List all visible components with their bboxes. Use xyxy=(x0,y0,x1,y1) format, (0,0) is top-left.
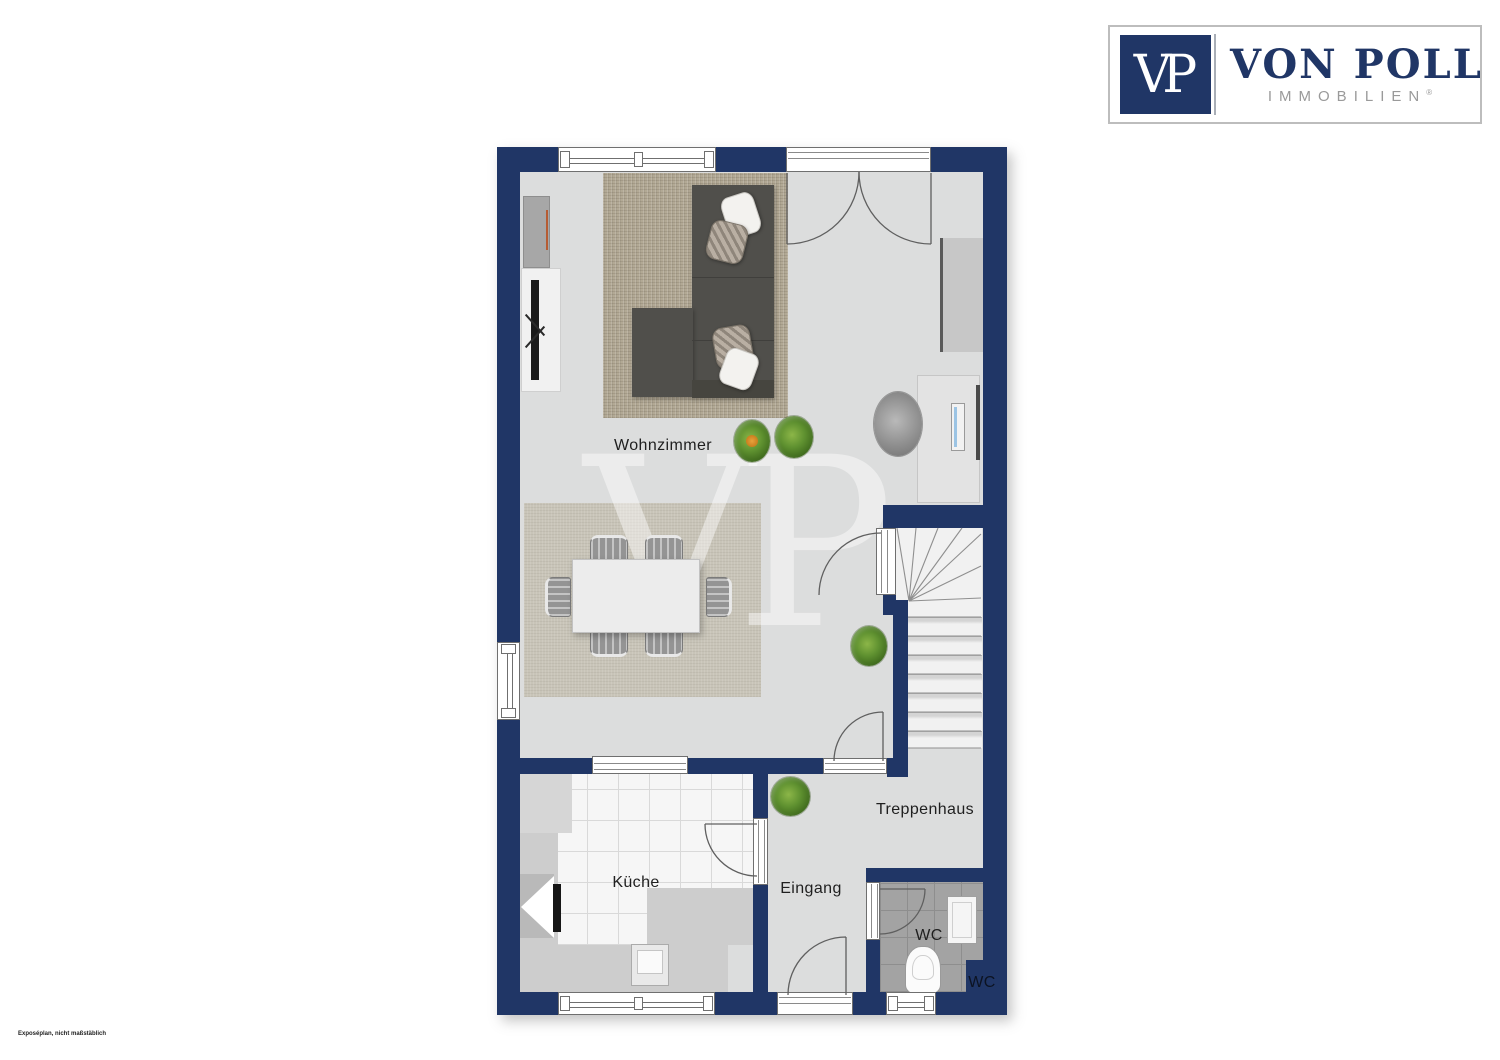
logo-divider xyxy=(1214,34,1216,115)
stair-treads xyxy=(897,528,981,748)
von-poll-logo: VP VON POLL IMMOBILIEN® xyxy=(1108,25,1482,124)
room-label-wc: WC xyxy=(915,927,942,945)
room-label-living: Wohnzimmer xyxy=(614,437,712,455)
logo-brand-subtitle: IMMOBILIEN® xyxy=(1230,88,1470,105)
floorplan-page: { "logo": { "vp_initials": "VP", "brand"… xyxy=(0,0,1500,1060)
room-label-staircase: Treppenhaus xyxy=(876,801,974,819)
room-label-wc-outer: WC xyxy=(968,974,995,992)
kitchen-door-swing xyxy=(705,824,757,876)
french-door-right-swing xyxy=(859,172,931,244)
logo-brand-name: VON POLL xyxy=(1230,41,1470,88)
hall-door-swing xyxy=(834,712,883,761)
stair-door-swing xyxy=(819,533,881,595)
room-label-kitchen: Küche xyxy=(612,874,659,892)
plan-disclaimer: Exposéplan, nicht maßstäblich xyxy=(18,1031,106,1037)
registered-trademark-icon: ® xyxy=(1426,88,1432,97)
french-door-left-swing xyxy=(787,172,859,244)
room-label-entry: Eingang xyxy=(780,880,842,898)
vp-monogram-icon: VP xyxy=(1120,35,1211,114)
door-swing-and-stair-lines xyxy=(0,0,1500,1060)
entrance-door-swing xyxy=(788,937,846,995)
